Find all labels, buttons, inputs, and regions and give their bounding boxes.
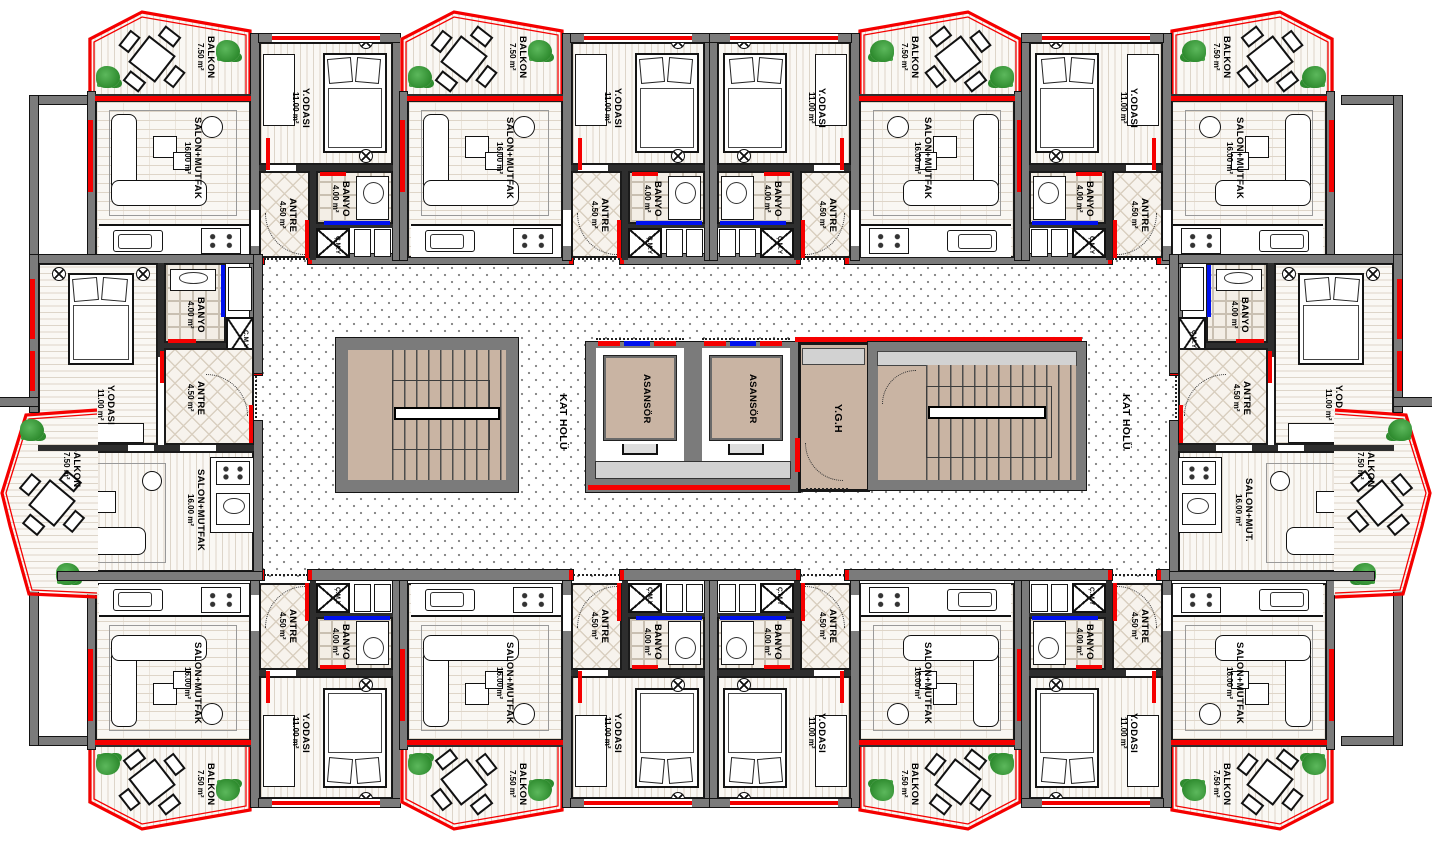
door-jamb	[266, 671, 270, 703]
glass-line	[1032, 221, 1098, 225]
stove	[869, 228, 909, 254]
door-jamb	[795, 438, 800, 472]
window-line	[1042, 801, 1150, 805]
water-heater	[719, 584, 736, 612]
lamp-icon	[1049, 678, 1063, 692]
laundry-label: Ç.M.Y	[1082, 582, 1094, 610]
bathroom: BANYO4.00 m²	[316, 617, 393, 670]
salon-label: SALON+MUTFAK16.00 m²	[178, 463, 206, 557]
entry-hall: ANTRE4.50 m²	[800, 583, 851, 670]
hall-label: KAT HOLÜ	[545, 384, 569, 460]
entry-hall-label: ANTRE4.50 m²	[1124, 178, 1150, 252]
bed	[68, 273, 134, 365]
wall	[710, 581, 717, 807]
door-jamb	[305, 220, 309, 258]
apartment-bottom-2: BALKON7.50 m² SALON+MUTFAK16.00 m² SALON…	[400, 581, 712, 833]
apartment-top-1: BALKON7.50 m² SALON+MUTFAK16.00 m² SALON…	[88, 8, 400, 260]
plant	[870, 40, 894, 62]
balcony-rail-line	[859, 740, 1015, 745]
bathroom-sink	[721, 176, 754, 220]
wall	[710, 34, 717, 260]
bedroom: Y.ODASI11.00 m²	[259, 676, 393, 799]
washer	[666, 584, 683, 612]
wall	[30, 586, 38, 745]
living-kitchen-room: SALON+MUTFAK16.00 m² SALON+MUT.16.00 m²	[95, 100, 251, 258]
door-jamb	[1157, 570, 1161, 580]
door-opening	[578, 165, 608, 171]
living-kitchen-room: SALON+MUTFAK16.00 m² SALON+MUT.16.00 m²	[859, 100, 1015, 258]
fire-lobby: Y.G.H	[798, 342, 870, 492]
salon-label: SALON+MUTFAK16.00 m²	[489, 110, 515, 206]
entry-hall-label: ANTRE4.50 m²	[584, 178, 610, 252]
salon-label: SALON+MUTFAK16.00 m²	[1219, 635, 1245, 731]
lamp-icon	[737, 678, 751, 692]
bathroom: BANYO4.00 m²	[717, 171, 794, 224]
plant	[990, 753, 1014, 775]
balcony-label: BALKON7.50 m²	[1350, 433, 1376, 499]
washer	[1051, 584, 1068, 612]
elevator-door-mark	[704, 341, 726, 346]
wall	[1342, 96, 1402, 104]
bathroom-label: BANYO4.00 m²	[1071, 619, 1095, 665]
door-jamb	[620, 570, 624, 580]
door-jamb	[569, 570, 573, 580]
wall	[58, 572, 262, 580]
plant	[1182, 40, 1206, 62]
balcony-label: BALKON7.50 m²	[56, 433, 82, 499]
kitchen-sink	[1259, 230, 1309, 252]
door-arc	[206, 374, 248, 416]
bathroom-sink	[356, 176, 389, 220]
door-jamb	[1152, 671, 1156, 703]
kitchen-sink	[425, 589, 475, 611]
wall	[1342, 737, 1402, 745]
door-opening	[1163, 210, 1171, 246]
threshold-line	[588, 485, 790, 490]
wall	[30, 96, 38, 255]
door-jamb	[1113, 220, 1117, 258]
stove	[513, 587, 553, 613]
window-line	[400, 649, 405, 721]
balcony: BALKON7.50 m²	[88, 8, 252, 99]
door-jamb	[632, 665, 658, 669]
staircase-left	[336, 338, 518, 492]
stove	[201, 587, 241, 613]
wall	[310, 581, 316, 676]
bedroom: Y.ODASI11.00 m²	[571, 42, 705, 165]
armchair	[201, 703, 223, 725]
salon-label: SALON+MUTFAK16.00 m²	[907, 635, 933, 731]
wall	[845, 570, 1112, 580]
laundry-label: Ç.M.Y	[640, 231, 652, 259]
entry-hall: ANTRE4.50 m²	[1112, 171, 1163, 258]
glass-line	[1207, 265, 1211, 317]
plant	[96, 66, 120, 88]
bathroom-sink	[721, 621, 754, 665]
elevator-door-mark	[760, 341, 782, 346]
armchair	[1199, 116, 1221, 138]
bathroom: BANYO4.00 m²	[1206, 263, 1268, 343]
apartment-right: Y.ODASI11.00 m² BANYO4.00 m² Ç.M.Y ANTRE…	[1170, 255, 1402, 580]
stove	[869, 587, 909, 613]
bathroom-sink	[668, 621, 701, 665]
laundry-label: Ç.M.Y	[770, 582, 782, 610]
window-line	[584, 801, 692, 805]
bedroom-label: Y.ODASI11.00 m²	[595, 66, 623, 150]
wall	[1170, 572, 1374, 580]
bedroom: Y.ODASI11.00 m²	[259, 42, 393, 165]
door-jamb	[801, 583, 805, 621]
laundry-closet: Ç.M.Y	[1072, 228, 1106, 258]
laundry-closet: Ç.M.Y	[628, 228, 662, 258]
bathroom-sink	[1033, 176, 1066, 220]
elevator-block: ASANSÖR ASANSÖR	[586, 342, 800, 492]
plant	[870, 779, 894, 801]
armchair	[1199, 703, 1221, 725]
balcony-label: BALKON7.50 m²	[1206, 24, 1232, 90]
washer	[1051, 229, 1068, 257]
bathroom: BANYO4.00 m²	[628, 171, 705, 224]
door-jamb	[1152, 138, 1156, 170]
bedroom: Y.ODASI11.00 m²	[1029, 42, 1163, 165]
bathroom: BANYO4.00 m²	[717, 617, 794, 670]
lamp-icon	[1049, 149, 1063, 163]
door-jamb	[1113, 583, 1117, 621]
elevator-label: ASANSÖR	[630, 364, 652, 434]
entry-hall: ANTRE4.50 m²	[571, 583, 622, 670]
stair-handrail	[928, 406, 1046, 419]
fire-lobby-label: Y.G.H	[822, 389, 844, 447]
bedroom-label: Y.ODASI11.00 m²	[1111, 66, 1139, 150]
washer	[354, 584, 371, 612]
salon-label: SALON+MUTFAK16.00 m²	[177, 635, 203, 731]
apartment-bottom-4: BALKON7.50 m² SALON+MUTFAK16.00 m² SALON…	[1022, 581, 1334, 833]
wall	[1022, 581, 1029, 807]
salon-label: SALON+MUTFAK16.00 m²	[177, 110, 203, 206]
water-heater	[686, 229, 703, 257]
apartment-top-2: BALKON7.50 m² SALON+MUTFAK16.00 m² SALON…	[400, 8, 712, 260]
lamp-icon	[136, 267, 150, 281]
bathroom-sink	[356, 621, 389, 665]
door-opening	[251, 210, 259, 246]
bathroom-label: BANYO4.00 m²	[759, 619, 783, 665]
living-kitchen-room: SALON+MUTFAK16.00 m² SALON+MUT.16.00 m²	[1171, 583, 1327, 741]
plant	[408, 66, 432, 88]
wall	[308, 570, 573, 580]
bedroom: Y.ODASI11.00 m²	[717, 42, 851, 165]
wall	[30, 737, 90, 745]
laundry-label: Ç.M.Y	[328, 231, 340, 259]
bedroom: Y.ODASI11.00 m²	[1029, 676, 1163, 799]
wall	[164, 343, 226, 348]
balcony-rail-line	[95, 96, 251, 101]
window-line	[1397, 351, 1402, 391]
door-opening	[1216, 445, 1252, 451]
door-jamb	[160, 351, 164, 383]
armchair	[887, 116, 909, 138]
wall	[393, 581, 400, 807]
pit-landing	[596, 462, 790, 478]
window-line	[1397, 279, 1402, 339]
entry-hall-label: ANTRE4.50 m²	[812, 589, 838, 663]
elevator-sill-icon	[728, 444, 764, 455]
stove	[1182, 461, 1216, 485]
stove	[513, 228, 553, 254]
bathroom: BANYO4.00 m²	[1029, 617, 1106, 670]
bathroom: BANYO4.00 m²	[164, 263, 226, 343]
laundry-closet: Ç.M.Y	[760, 583, 794, 613]
washer	[739, 229, 756, 257]
entry-hall: ANTRE4.50 m²	[571, 171, 622, 258]
door-opening	[578, 670, 608, 676]
door-opening	[266, 165, 296, 171]
wall	[1170, 255, 1402, 263]
door-threshold	[800, 574, 845, 576]
wall	[859, 745, 1015, 747]
stove	[201, 228, 241, 254]
bedroom-label: Y.ODASI11.00 m²	[595, 691, 623, 775]
wall	[0, 398, 38, 406]
bedroom-label: Y.ODASI11.00 m²	[283, 691, 311, 775]
door-opening	[251, 595, 259, 631]
balcony-label: BALKON7.50 m²	[894, 751, 920, 817]
floor-plan: KAT HOLÜ ASANSÖR ASANSÖR Y.G.H	[0, 0, 1432, 841]
living-kitchen-room: SALON+MUTFAK16.00 m² SALON+MUT.16.00 m²	[1171, 100, 1327, 258]
balcony-label: BALKON7.50 m²	[190, 751, 216, 817]
wall	[310, 165, 316, 260]
lobby-strip	[803, 349, 864, 364]
plant	[1302, 66, 1326, 88]
washer	[354, 229, 371, 257]
bathroom-label: BANYO4.00 m²	[759, 176, 783, 222]
wall	[622, 581, 628, 676]
bed	[1035, 688, 1099, 788]
laundry-closet: Ç.M.Y	[628, 583, 662, 613]
door-jamb	[308, 570, 312, 580]
laundry-closet: Ç.M.Y	[760, 228, 794, 258]
bathroom: BANYO4.00 m²	[1029, 171, 1106, 224]
water-heater	[1031, 584, 1048, 612]
door-jamb	[1076, 665, 1102, 669]
door-jamb	[249, 405, 253, 443]
landing-strip	[878, 352, 1076, 365]
bedroom-label: Y.ODASI11.00 m²	[799, 691, 827, 775]
wall	[1170, 421, 1178, 580]
plant	[1182, 779, 1206, 801]
kitchen-sink	[947, 589, 997, 611]
balcony: BALKON7.50 m²	[400, 8, 564, 99]
window-line	[30, 351, 35, 391]
balcony-rail-line	[1171, 740, 1327, 745]
glass-line	[636, 221, 702, 225]
door-opening	[1163, 595, 1171, 631]
door-opening	[851, 210, 859, 246]
door-opening	[266, 670, 296, 676]
door-jamb	[320, 665, 346, 669]
door-jamb	[845, 570, 849, 580]
living-kitchen-room: SALON+MUTFAK16.00 m² SALON+MUT.16.00 m²	[95, 583, 251, 741]
window-line	[1042, 36, 1150, 40]
door-opening	[563, 595, 571, 631]
wall	[794, 165, 800, 260]
wall	[1268, 263, 1274, 357]
bathroom: BANYO4.00 m²	[628, 617, 705, 670]
balcony-label: BALKON7.50 m²	[190, 24, 216, 90]
window-line	[88, 649, 93, 721]
entry-hall: ANTRE4.50 m²	[1112, 583, 1163, 670]
wall	[1170, 255, 1178, 373]
elevator-label: ASANSÖR	[736, 364, 758, 434]
door-jamb	[1268, 351, 1272, 383]
door-jamb	[578, 671, 582, 703]
kitchen-sink	[1182, 493, 1216, 525]
window-line	[730, 801, 838, 805]
door-jamb	[305, 583, 309, 621]
bed	[723, 53, 787, 153]
hall-label: KAT HOLÜ	[1108, 384, 1132, 460]
lamp-icon	[1282, 267, 1296, 281]
elevator-door-mark	[624, 341, 650, 346]
lamp-icon	[359, 678, 373, 692]
living-kitchen-room: SALON+MUTFAK16.00 m² SALON+MUT.16.00 m²	[859, 583, 1015, 741]
wall	[620, 570, 800, 580]
water-heater	[1180, 267, 1204, 311]
washer	[739, 584, 756, 612]
door-jamb	[266, 138, 270, 170]
plant	[216, 40, 240, 62]
bathroom-label: BANYO4.00 m²	[182, 291, 206, 339]
window-line	[400, 120, 405, 192]
wall	[95, 745, 251, 747]
glass-line	[1032, 616, 1098, 620]
elevator-cab: ASANSÖR	[710, 356, 782, 440]
wall	[1022, 34, 1029, 260]
door-jamb	[578, 138, 582, 170]
armchair	[887, 703, 909, 725]
balcony-rail-line	[95, 740, 251, 745]
salon-label: SALON+MUTFAK16.00 m²	[907, 110, 933, 206]
door-jamb	[1108, 570, 1112, 580]
laundry-label: Ç.M.Y	[770, 231, 782, 259]
bathroom-label: BANYO4.00 m²	[639, 176, 663, 222]
balcony-label: BALKON7.50 m²	[502, 751, 528, 817]
door-jamb	[1179, 405, 1183, 443]
door-jamb	[796, 570, 800, 580]
door-jamb	[801, 220, 805, 258]
bed	[323, 53, 387, 153]
armchair	[513, 116, 535, 138]
door-jamb	[840, 671, 844, 703]
kitchen-sink	[216, 493, 250, 525]
bedroom-label: Y.ODASI11.00 m²	[283, 66, 311, 150]
armchair	[201, 116, 223, 138]
lamp-icon	[737, 149, 751, 163]
laundry-label: Ç.M.Y	[328, 582, 340, 610]
entry-hall-label: ANTRE4.50 m²	[1124, 589, 1150, 663]
bathroom-sink	[1033, 621, 1066, 665]
balcony-rail-line	[407, 740, 563, 745]
lamp-icon	[1366, 267, 1380, 281]
plant	[1388, 419, 1412, 441]
entry-hall: ANTRE4.50 m²	[259, 171, 310, 258]
wall	[1394, 398, 1432, 406]
armchair	[1270, 471, 1290, 491]
balcony: BALKON7.50 m²	[858, 742, 1022, 833]
kitchen-sink	[113, 589, 163, 611]
lamp-icon	[359, 149, 373, 163]
window-line	[272, 36, 380, 40]
wall	[254, 421, 262, 580]
elevator-door-mark	[654, 341, 676, 346]
laundry-closet: Ç.M.Y	[1072, 583, 1106, 613]
wall	[1206, 343, 1268, 348]
bathroom-label: BANYO4.00 m²	[1226, 291, 1250, 339]
door-jamb	[840, 138, 844, 170]
laundry-closet: Ç.M.Y	[316, 228, 350, 258]
door-jamb	[764, 665, 790, 669]
bathroom: BANYO4.00 m²	[316, 171, 393, 224]
bedroom: Y.ODASI11.00 m²	[717, 676, 851, 799]
stove	[1181, 587, 1221, 613]
elevator-cab: ASANSÖR	[604, 356, 676, 440]
wall	[393, 34, 400, 260]
door-opening	[851, 595, 859, 631]
lamp-icon	[52, 267, 66, 281]
glass-line	[324, 616, 390, 620]
lamp-icon	[671, 678, 685, 692]
door-opening	[563, 210, 571, 246]
window-line	[272, 801, 380, 805]
balcony: BALKON7.50 m²	[1170, 742, 1334, 833]
door-opening	[1278, 445, 1304, 451]
balcony-label: BALKON7.50 m²	[502, 24, 528, 90]
kitchen-sink	[113, 230, 163, 252]
plant	[990, 66, 1014, 88]
stair-handrail	[394, 407, 500, 420]
wall	[1394, 96, 1402, 255]
door-jamb	[617, 220, 621, 258]
glass-line	[636, 616, 702, 620]
wall	[30, 96, 90, 104]
glass-line	[720, 616, 786, 620]
glass-line	[221, 265, 225, 317]
wall	[1106, 165, 1112, 260]
door-opening	[128, 445, 154, 451]
bed	[635, 688, 699, 788]
balcony-rail-line	[859, 96, 1015, 101]
apartment-top-3: BALKON7.50 m² SALON+MUTFAK16.00 m² SALON…	[710, 8, 1022, 260]
bathroom-sink	[170, 269, 216, 291]
bed	[635, 53, 699, 153]
door-threshold	[573, 574, 620, 576]
window-line	[1329, 649, 1334, 721]
apartment-top-4: BALKON7.50 m² SALON+MUTFAK16.00 m² SALON…	[1022, 8, 1334, 260]
entry-hall-label: ANTRE4.50 m²	[272, 589, 298, 663]
shaft-door-line	[596, 338, 684, 340]
armchair	[142, 471, 162, 491]
bed	[1035, 53, 1099, 153]
water-heater	[374, 229, 391, 257]
staircase-right	[868, 342, 1086, 490]
balcony-label: BALKON7.50 m²	[894, 24, 920, 90]
balcony: BALKON7.50 m²	[400, 742, 564, 833]
washer	[666, 229, 683, 257]
elevator-door-mark	[598, 341, 620, 346]
wall	[1106, 581, 1112, 676]
bed	[323, 688, 387, 788]
kitchen-sink	[1259, 589, 1309, 611]
bathroom-sink	[1216, 269, 1262, 291]
